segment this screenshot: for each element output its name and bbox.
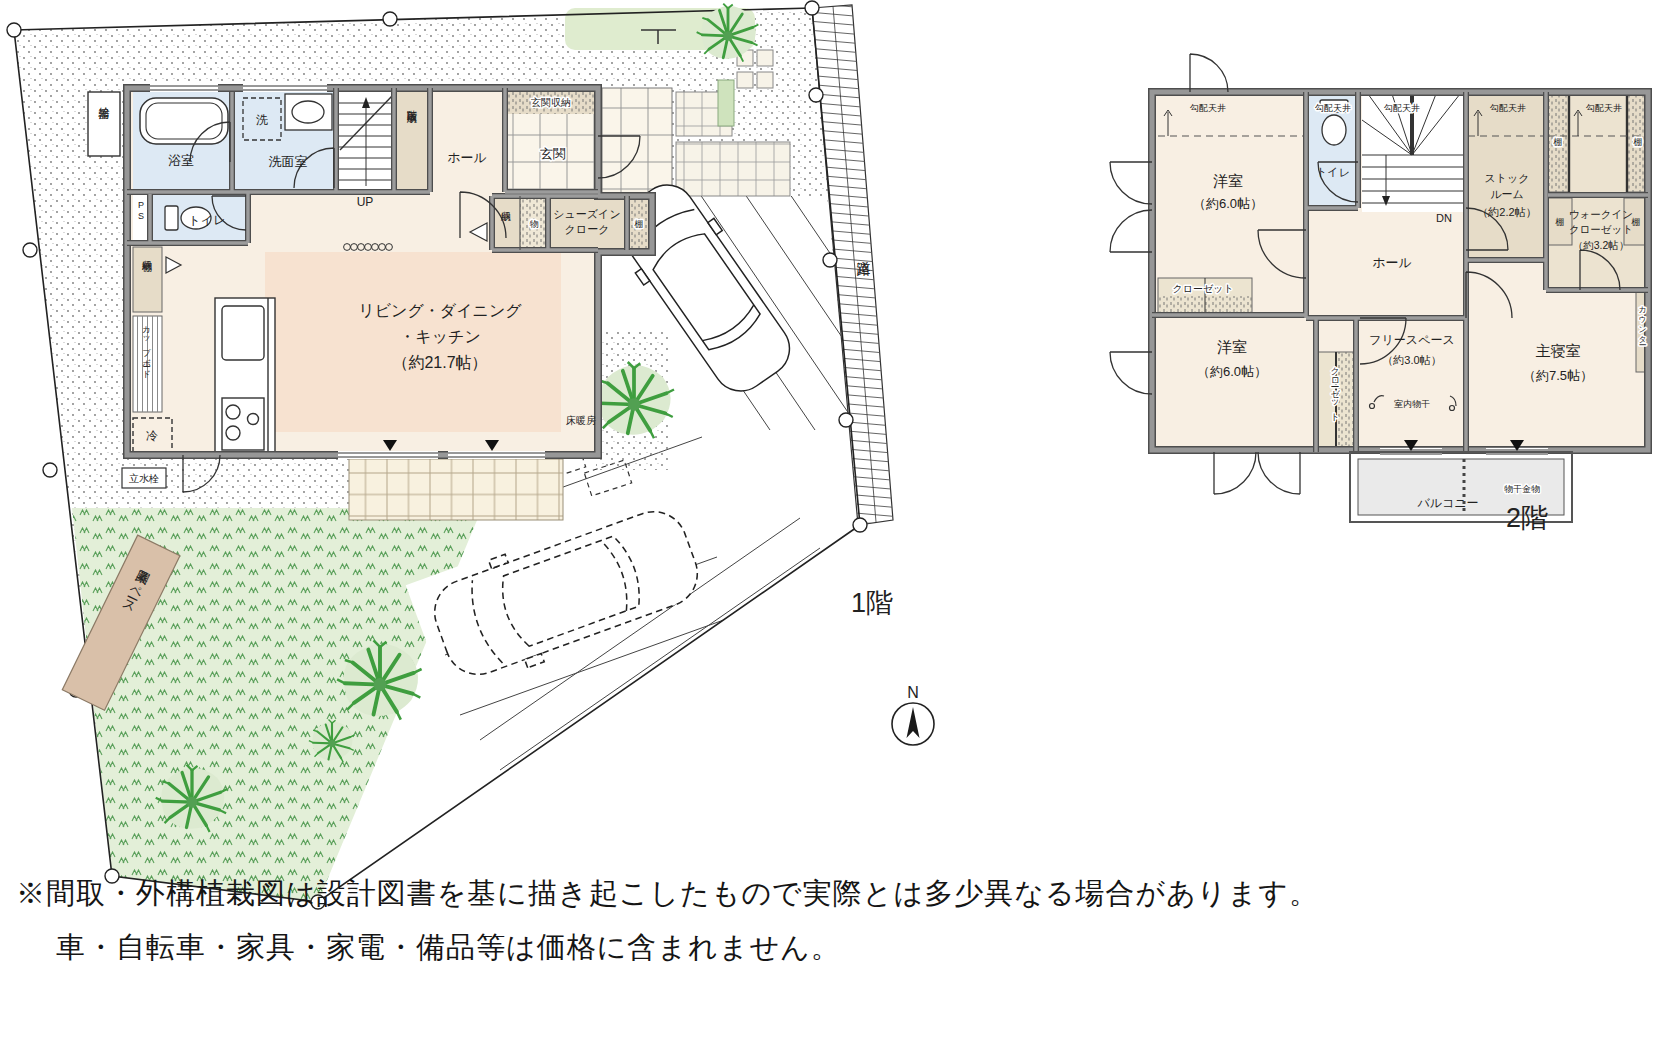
western2-label: 洋室 bbox=[1217, 338, 1247, 355]
bathtub bbox=[140, 98, 228, 144]
sloped-label: 勾配天井 bbox=[1489, 103, 1526, 113]
entry-storage-label: 玄関収納 bbox=[531, 97, 571, 108]
sloped-label: 勾配天井 bbox=[1383, 103, 1420, 113]
floor1-plan: 給湯器 浴室 洗 洗面室 階段下収納 UP ホール 玄関収納 玄関 トイレ PS… bbox=[88, 84, 652, 520]
free-space-size: （約3.0帖） bbox=[1382, 354, 1441, 366]
drying-label: 室内物干 bbox=[1394, 399, 1430, 409]
master-label: 主寝室 bbox=[1536, 342, 1581, 359]
ldk-label-3: （約21.7帖） bbox=[392, 354, 487, 371]
counter-label: カウンター bbox=[1638, 300, 1647, 346]
western2-size: （約6.0帖） bbox=[1197, 364, 1267, 379]
stock-label-2: ルーム bbox=[1490, 188, 1524, 200]
goods-label: 物 bbox=[530, 219, 539, 229]
stock-label-3: （約2.2帖） bbox=[1477, 206, 1536, 218]
sloped-label: 勾配天井 bbox=[1314, 103, 1351, 113]
planting-strip bbox=[718, 80, 734, 126]
wic-label-3: （約3.2帖） bbox=[1573, 239, 1630, 251]
floor2-plan: 勾配天井 勾配天井 勾配天井 勾配天井 勾配天井 洋室 （約6.0帖） クローゼ… bbox=[1110, 54, 1648, 522]
toilet2-label: トイレ bbox=[1316, 166, 1350, 178]
closet1-label: クローゼット bbox=[1172, 283, 1233, 294]
wic-label-1: ウォークイン bbox=[1569, 208, 1633, 220]
understair-floor bbox=[396, 92, 430, 192]
compass: N bbox=[892, 684, 934, 745]
porch-tiles bbox=[602, 88, 672, 196]
washer-label: 洗 bbox=[256, 113, 268, 127]
sloped-label: 勾配天井 bbox=[1189, 103, 1226, 113]
stock-label-1: ストック bbox=[1484, 172, 1529, 184]
hall2-label: ホール bbox=[1372, 255, 1412, 270]
free-space-label: フリースペース bbox=[1369, 333, 1454, 347]
floor2-title: 2階 bbox=[1506, 503, 1548, 533]
sic-label-2: クローク bbox=[565, 223, 610, 235]
shelf-label: 棚 bbox=[1555, 217, 1565, 227]
master-size: （約7.5帖） bbox=[1523, 368, 1593, 383]
shelf1-label: 棚 bbox=[634, 219, 644, 229]
wic-label-2: クローゼット bbox=[1569, 223, 1633, 235]
disclaimer-line2: 車・自転車・家具・家電・備品等は価格に含まれません。 bbox=[56, 928, 841, 968]
closet2-label: クローゼット bbox=[1330, 360, 1340, 421]
fridge-label: 冷 bbox=[146, 429, 158, 443]
up-label: UP bbox=[357, 195, 374, 209]
toilet1-label: トイレ bbox=[189, 213, 226, 227]
water-heater-box bbox=[88, 92, 120, 156]
wash-basin bbox=[285, 94, 332, 130]
balcony-label: バルコニー bbox=[1416, 496, 1478, 510]
approach-tiles-b bbox=[676, 142, 790, 196]
disclaimer-line1: ※間取・外構植栽図は設計図書を基に描き起こしたもので実際とは多少異なる場合があり… bbox=[16, 874, 1319, 914]
western1-size: （約6.0帖） bbox=[1193, 196, 1263, 211]
entry-label: 玄関 bbox=[540, 146, 566, 161]
compass-n-label: N bbox=[907, 684, 919, 701]
hall1-label: ホール bbox=[447, 150, 487, 165]
floor1-title: 1階 bbox=[851, 588, 893, 618]
sic-label-1: シューズイン bbox=[553, 208, 620, 220]
floor-heating-label: 床暖房 bbox=[566, 415, 596, 426]
bath-label: 浴室 bbox=[168, 153, 194, 168]
ldk-label-1: リビング・ダイニング bbox=[358, 302, 522, 319]
hanger-label: 物干金物 bbox=[1504, 484, 1540, 494]
dn-label: DN bbox=[1436, 212, 1452, 224]
storage-shelf-box bbox=[133, 247, 162, 312]
sloped-label: 勾配天井 bbox=[1585, 103, 1622, 113]
ps-label: PS bbox=[136, 200, 146, 222]
kitchen-island bbox=[215, 298, 275, 454]
ldk-label-2: ・キッチン bbox=[399, 328, 481, 345]
wood-deck bbox=[349, 459, 563, 520]
western1-label: 洋室 bbox=[1213, 172, 1243, 189]
washroom-label: 洗面室 bbox=[269, 154, 308, 169]
cupboard-label: カップボード bbox=[141, 320, 152, 378]
water-tap-label: 立水栓 bbox=[129, 473, 159, 484]
floor-plan-page: 菜園スペース 道路 bbox=[0, 0, 1680, 1048]
